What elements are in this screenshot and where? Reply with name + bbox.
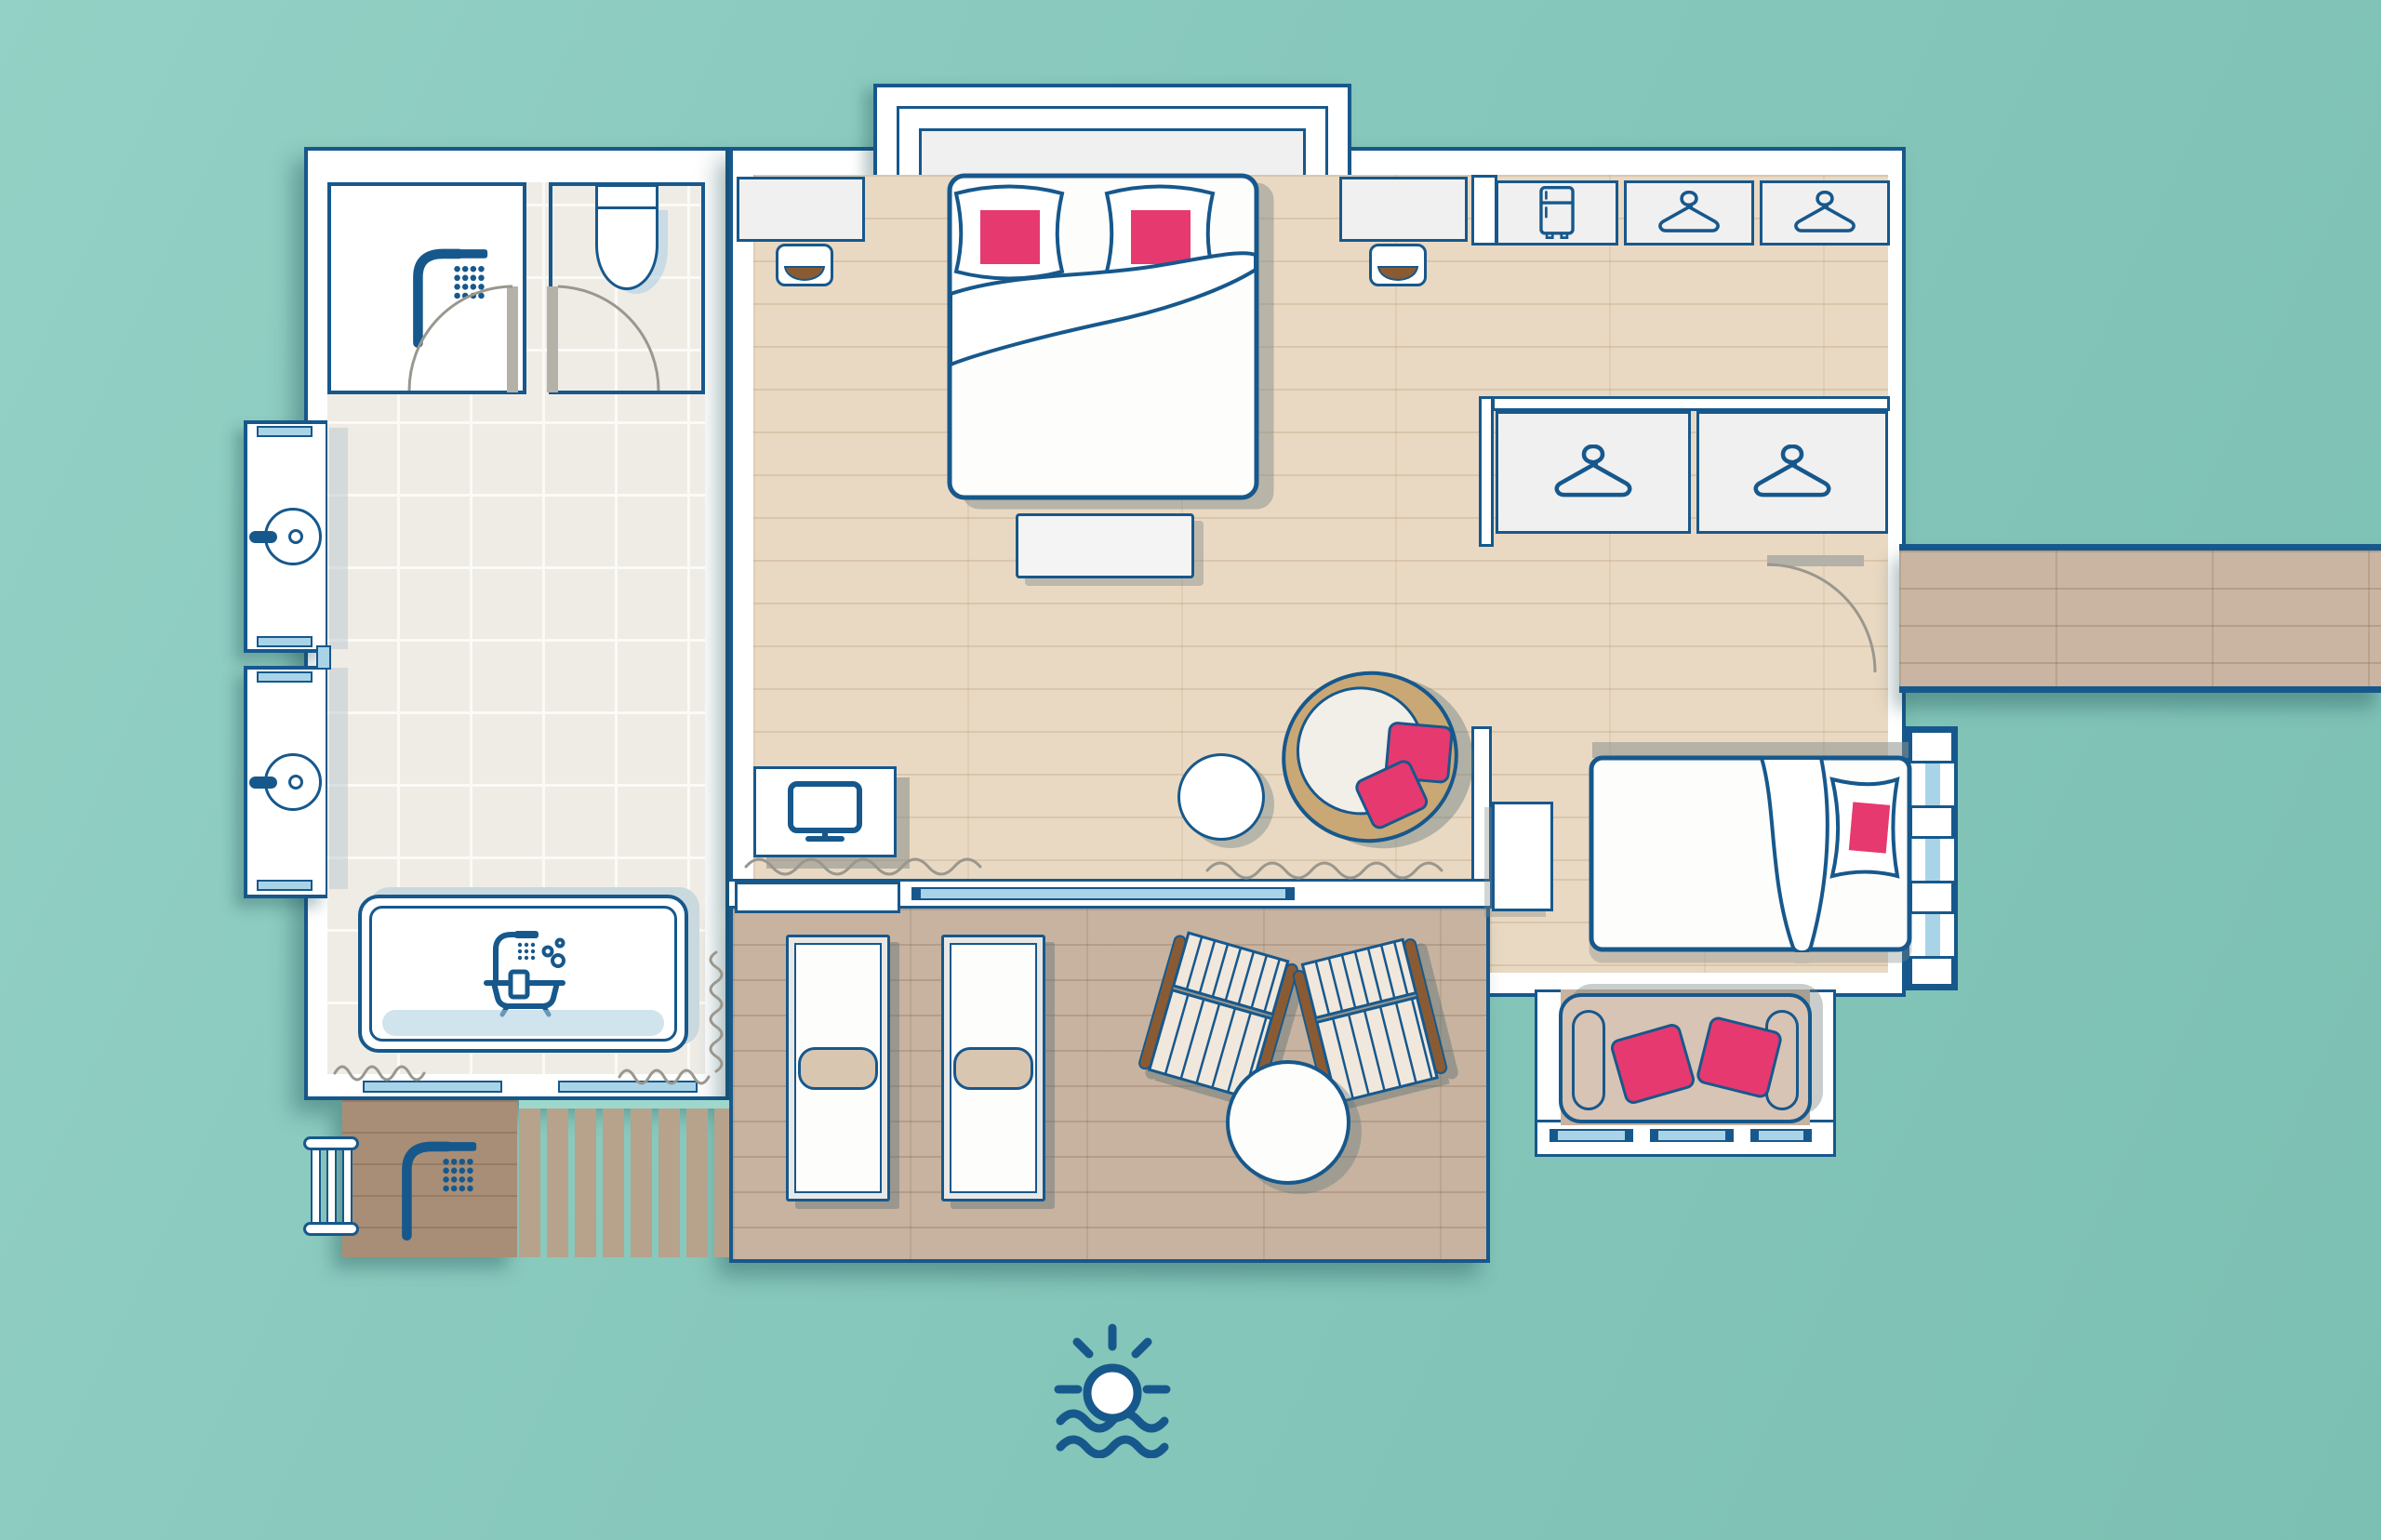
single-bed <box>1589 755 1912 952</box>
curtain-wave <box>618 1066 720 1086</box>
sea-ladder <box>303 1136 359 1242</box>
basin-drain-1 <box>288 529 303 544</box>
floor-plan-canvas <box>0 0 2381 1540</box>
window-glass <box>1550 1129 1633 1142</box>
outdoor-shower-icon <box>394 1133 480 1242</box>
bed-pillow <box>1832 779 1897 876</box>
bathtub-water-shade <box>382 1010 664 1036</box>
round-deck-table <box>1226 1060 1350 1185</box>
window-pier <box>1909 881 1954 914</box>
sofa <box>1559 993 1812 1123</box>
ladder-rung <box>326 1148 337 1224</box>
window-pier <box>1909 805 1954 839</box>
king-bed <box>947 173 1259 500</box>
window-glass <box>257 880 313 891</box>
ladder-rung <box>311 1148 321 1224</box>
sun-lounger <box>786 935 890 1201</box>
curtain-wave <box>744 856 986 876</box>
bedside-desk-right <box>1339 177 1468 242</box>
sliding-door-panel <box>735 882 900 913</box>
sliding-door-glass <box>911 887 1295 900</box>
wardrobe-module <box>1696 411 1888 534</box>
minibar-cabinet <box>1496 180 1618 246</box>
wc-door-swing <box>552 283 662 396</box>
vanity-counter-shadow-2 <box>329 668 348 889</box>
tv-console <box>753 766 897 857</box>
window-pier <box>1909 730 1954 763</box>
wardrobe-side-wall <box>1479 396 1494 547</box>
lounger-pillow <box>953 1047 1033 1090</box>
stool-seat <box>784 266 826 281</box>
curtain-wave-vertical <box>707 950 727 1077</box>
curtain-wave <box>333 1062 435 1082</box>
wardrobe-module <box>1496 411 1691 534</box>
window-glass <box>257 636 313 647</box>
stool <box>1369 244 1427 286</box>
curtain-wave <box>1205 859 1447 880</box>
window-glass <box>257 426 313 437</box>
stool <box>776 244 833 286</box>
hanger-icon <box>1656 191 1723 235</box>
sofa-armrest <box>1572 1010 1605 1110</box>
ladder-rail <box>303 1222 359 1236</box>
vanity-counter-shadow-1 <box>329 428 348 649</box>
window-glass <box>316 645 331 670</box>
ladder-rung <box>342 1148 352 1224</box>
wardrobe-module <box>1624 180 1754 246</box>
closet-partition-wall <box>1471 175 1497 246</box>
stool-seat <box>1377 266 1419 281</box>
entry-door-swing <box>1763 561 1881 678</box>
sun-lounger <box>941 935 1045 1201</box>
tv-icon <box>788 781 862 843</box>
sun-over-water-icon <box>1049 1309 1179 1458</box>
nightstand <box>1492 802 1553 911</box>
steps-top-edge <box>519 1100 729 1109</box>
bedside-desk-left <box>737 177 865 242</box>
window-glass <box>257 671 313 683</box>
shower-door-swing <box>406 283 515 396</box>
basin-drain-2 <box>288 775 303 790</box>
round-side-table <box>1177 753 1265 841</box>
window-pier <box>1909 956 1954 987</box>
entry-jetty <box>1899 544 2381 693</box>
hanger-icon <box>1791 191 1858 235</box>
lounger-pillow <box>798 1047 878 1090</box>
wardrobe-module <box>1760 180 1890 246</box>
wardrobe-back-wall <box>1492 396 1890 411</box>
deck-steps <box>519 1109 729 1257</box>
fridge-icon <box>1537 185 1576 241</box>
hanger-icon <box>1550 445 1636 500</box>
pink-pillow <box>1609 1022 1697 1107</box>
window-glass <box>1925 730 1940 987</box>
foot-bench <box>1016 513 1194 578</box>
basin-faucet-2 <box>249 777 277 789</box>
basin-faucet-1 <box>249 531 277 543</box>
hanger-icon <box>1749 445 1835 500</box>
bed-pillow <box>956 187 1062 279</box>
window-glass <box>1750 1129 1812 1142</box>
window-glass <box>1650 1129 1734 1142</box>
